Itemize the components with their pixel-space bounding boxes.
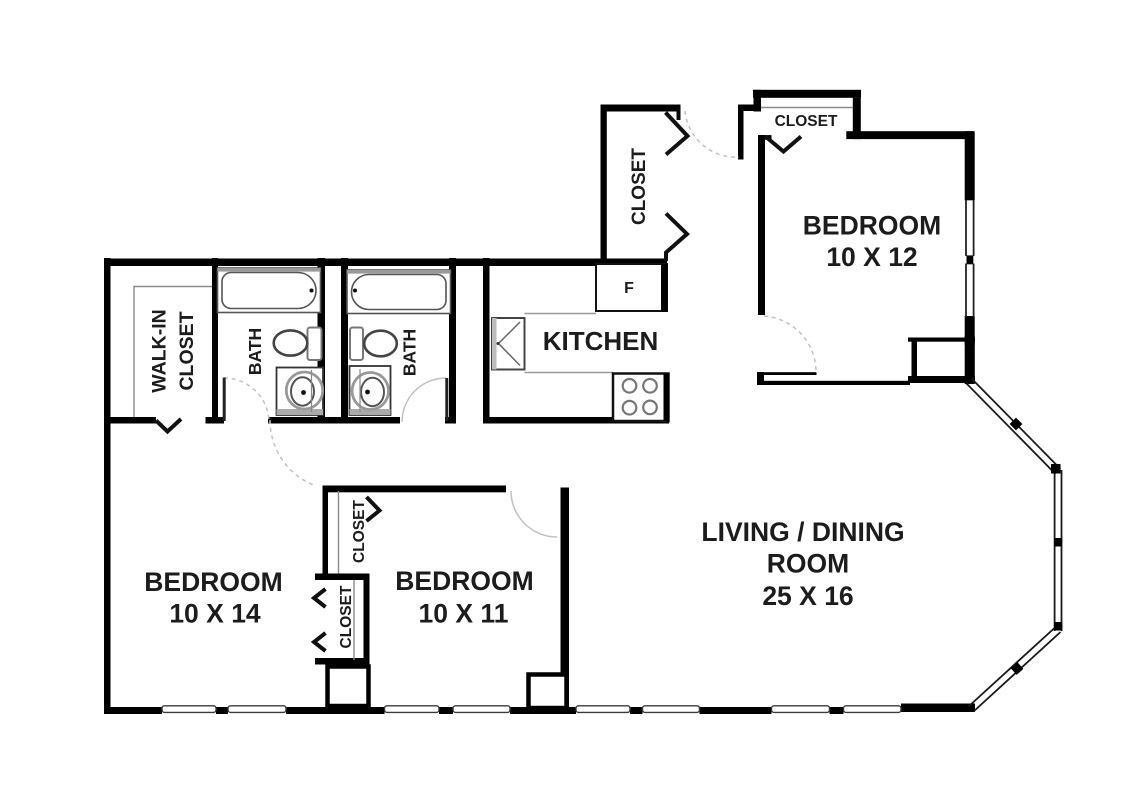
svg-text:LIVING / DINING: LIVING / DINING	[701, 517, 904, 547]
svg-text:BEDROOM: BEDROOM	[803, 211, 941, 241]
svg-text:CLOSET: CLOSET	[176, 311, 198, 390]
svg-text:10 X 12: 10 X 12	[826, 242, 917, 272]
svg-text:WALK-IN: WALK-IN	[149, 309, 171, 392]
svg-text:10 X 14: 10 X 14	[169, 599, 261, 629]
svg-text:25 X 16: 25 X 16	[762, 581, 853, 611]
svg-text:10 X 11: 10 X 11	[419, 599, 509, 629]
svg-text:CLOSET: CLOSET	[338, 585, 355, 648]
svg-text:BATH: BATH	[400, 329, 420, 376]
svg-text:CLOSET: CLOSET	[629, 148, 650, 225]
svg-text:BEDROOM: BEDROOM	[144, 567, 282, 597]
svg-text:CLOSET: CLOSET	[775, 113, 838, 130]
svg-text:BATH: BATH	[245, 328, 265, 375]
svg-text:CLOSET: CLOSET	[351, 500, 368, 563]
svg-text:F: F	[624, 280, 634, 297]
svg-text:BEDROOM: BEDROOM	[395, 566, 533, 596]
svg-text:ROOM: ROOM	[767, 549, 849, 579]
svg-text:KITCHEN: KITCHEN	[543, 326, 659, 356]
